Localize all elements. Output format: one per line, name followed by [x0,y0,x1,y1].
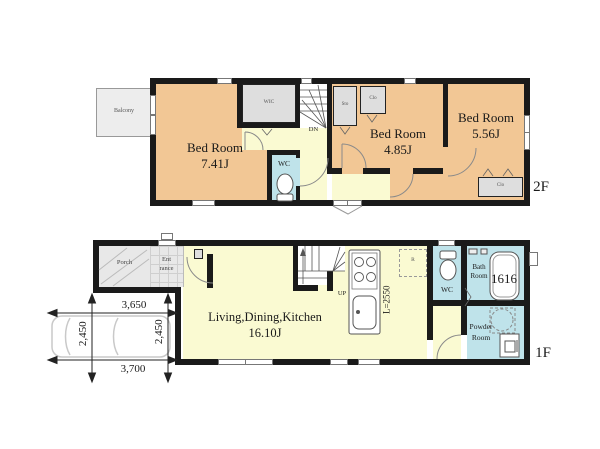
dimension-right-height: 2,450 [154,302,166,362]
entrance-label-2: rance [150,266,183,273]
stairwell-1f-lower [298,271,327,285]
wall [327,271,333,291]
wall [296,150,300,158]
floor-plan-canvas: Balcony Bed Room 7.41J WIC Sto Clo Clo D… [0,0,600,449]
window [404,78,416,84]
wall [150,78,530,84]
wall [237,123,296,128]
shoe-cabinet [194,249,203,259]
wall [93,287,181,293]
dimension-bottom-width: 3,700 [93,364,173,376]
hall-strip-1f [433,306,461,359]
front-door-canopy [161,233,173,240]
wall [237,84,242,128]
floor2-label: 2F [528,180,554,196]
window [218,359,246,365]
bedroom1-label: Bed Room [165,141,265,155]
water-heater [529,252,538,266]
closet-right-label: Clo [478,183,523,188]
window [217,78,232,84]
fridge-label: R [399,258,427,264]
door-opening [342,168,363,174]
bedroom2-size: 4.85J [348,143,448,157]
window [301,78,312,84]
window [150,115,156,135]
ldk-size: 16.10J [165,327,365,340]
floor1-label: 1F [530,346,556,362]
window [330,359,348,365]
roof-outline [333,206,362,214]
wall [295,285,318,291]
bedroom3-size: 5.56J [436,127,536,141]
wic-label: WIC [242,100,296,106]
bedroom3-extension [390,174,448,200]
ldk-label: Living,Dining,Kitchen [165,311,365,324]
window [358,359,380,365]
wall [327,84,332,174]
window [245,359,273,365]
hall-2f-lower [332,174,390,200]
bathroom-label-1: Bath [464,264,494,271]
stairwell-1f [298,246,345,271]
storage-label: Sto [333,102,357,107]
wall [267,150,272,200]
bedroom2-label: Bed Room [348,127,448,141]
bathroom-size: 1616 [485,272,523,286]
wall [175,287,181,365]
stairwell-2f [300,84,327,128]
wall [296,84,300,128]
wall [296,186,300,200]
front-door-opening [158,240,176,246]
wc-1f-label: WC [433,286,461,294]
closet-top-label: Clo [360,96,386,101]
powder-room-label-2: Room [460,334,502,342]
powder-room-label-1: Powder [460,323,502,331]
window [192,200,215,206]
stairs-up-label: UP [330,291,354,298]
wall [363,168,390,174]
wall [427,306,433,340]
window [438,240,455,246]
bedroom1-size: 7.41J [165,157,265,171]
wall [332,168,342,174]
entrance-label-1: Ent [150,257,183,264]
hall-2f-corridor [300,128,327,200]
door-opening [296,158,300,186]
wc-2f-label: WC [272,160,296,168]
plan-graphics [0,0,600,449]
door-opening [390,168,413,174]
bedroom3-label: Bed Room [436,111,536,125]
kitchen-length-label: L=2550 [382,270,391,330]
stairs-down-label: DN [300,127,327,134]
entrance-step-line [183,246,184,287]
wall [427,300,524,306]
window [333,200,348,206]
balcony-label: Balcony [96,108,152,114]
porch-label: Porch [99,260,150,267]
window [347,200,362,206]
dimension-left-height: 2,450 [78,304,90,364]
wall [207,254,213,288]
